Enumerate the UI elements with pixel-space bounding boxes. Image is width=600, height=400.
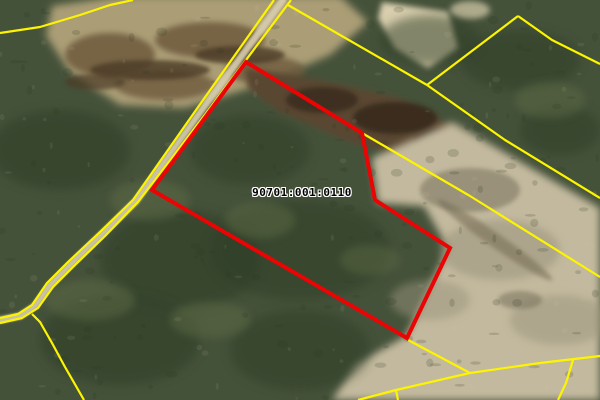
forest-light-5 — [515, 82, 585, 118]
terrain-layer — [0, 0, 600, 400]
forest-light-3 — [45, 280, 135, 320]
parcel-marsh-dark-1 — [353, 102, 437, 134]
forest-light-2 — [225, 202, 295, 238]
sand-top-right-2 — [450, 1, 490, 19]
marsh-streak-3 — [65, 74, 125, 90]
map-viewport[interactable]: 90701:001:0110 — [0, 0, 600, 400]
forest-light-6 — [340, 245, 400, 275]
cadastral-number-label: 90701:001:0110 — [252, 186, 352, 199]
forest-dark-7 — [460, 30, 580, 90]
forest-light-4 — [170, 302, 250, 338]
forest-dark-9 — [230, 310, 370, 390]
aerial-map — [0, 0, 600, 400]
